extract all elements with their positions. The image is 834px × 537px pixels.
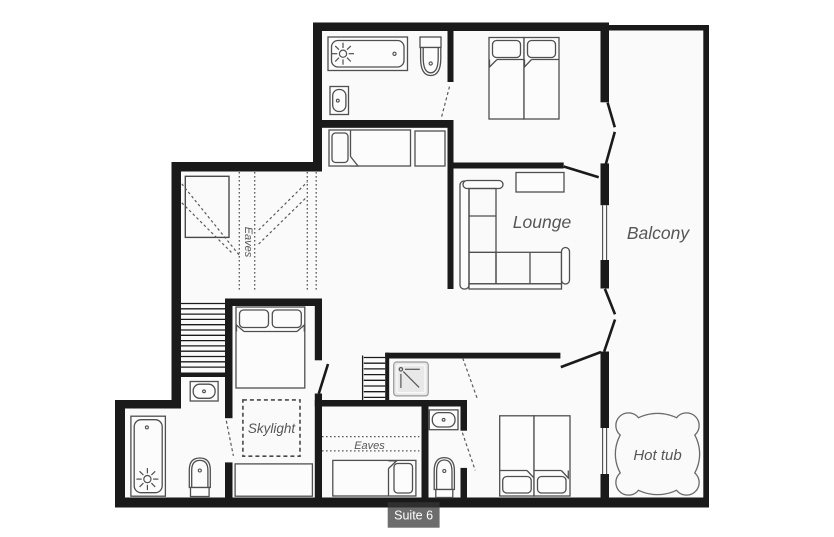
svg-text:Eaves: Eaves xyxy=(242,227,254,258)
svg-text:Lounge: Lounge xyxy=(513,212,572,232)
svg-text:Eaves: Eaves xyxy=(354,440,385,452)
svg-text:Hot tub: Hot tub xyxy=(633,447,681,464)
svg-text:Suite 6: Suite 6 xyxy=(394,509,433,523)
svg-text:Skylight: Skylight xyxy=(248,421,297,436)
svg-text:Balcony: Balcony xyxy=(627,223,691,243)
